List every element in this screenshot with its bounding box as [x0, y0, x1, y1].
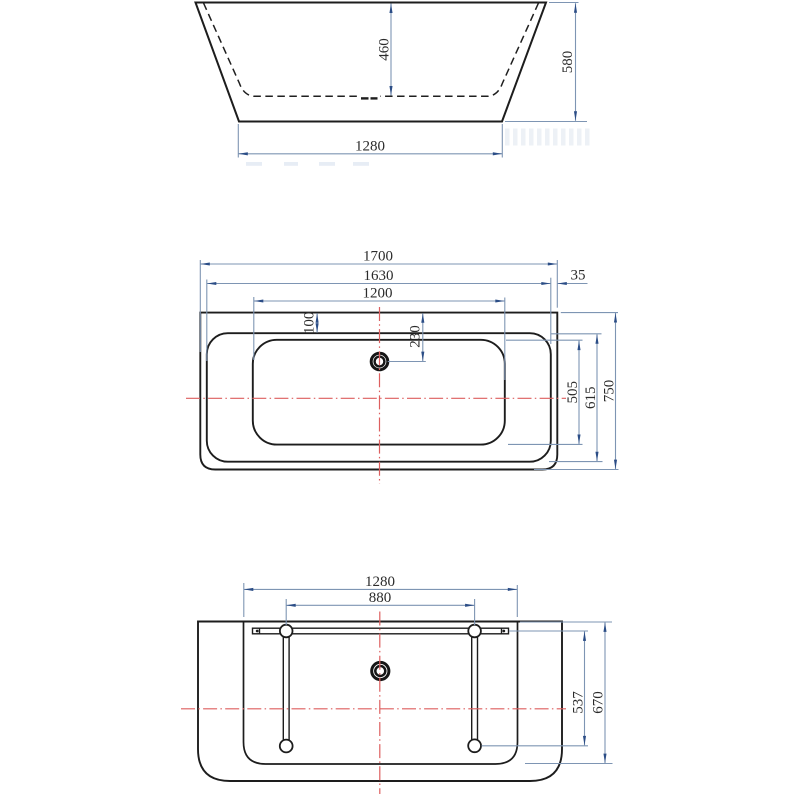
- svg-text:35: 35: [571, 267, 586, 283]
- svg-text:100: 100: [302, 312, 318, 335]
- svg-text:750: 750: [602, 380, 618, 403]
- svg-text:670: 670: [591, 691, 607, 714]
- svg-text:615: 615: [583, 386, 599, 409]
- svg-text:1280: 1280: [355, 139, 385, 155]
- svg-text:1200: 1200: [363, 286, 393, 302]
- svg-text:537: 537: [571, 691, 587, 714]
- svg-text:580: 580: [560, 51, 576, 74]
- svg-text:1280: 1280: [365, 574, 395, 590]
- svg-text:1700: 1700: [363, 249, 393, 265]
- svg-text:230: 230: [407, 325, 423, 348]
- svg-text:1630: 1630: [364, 268, 394, 284]
- svg-text:880: 880: [369, 590, 392, 606]
- svg-text:460: 460: [377, 38, 393, 61]
- svg-text:505: 505: [565, 381, 581, 404]
